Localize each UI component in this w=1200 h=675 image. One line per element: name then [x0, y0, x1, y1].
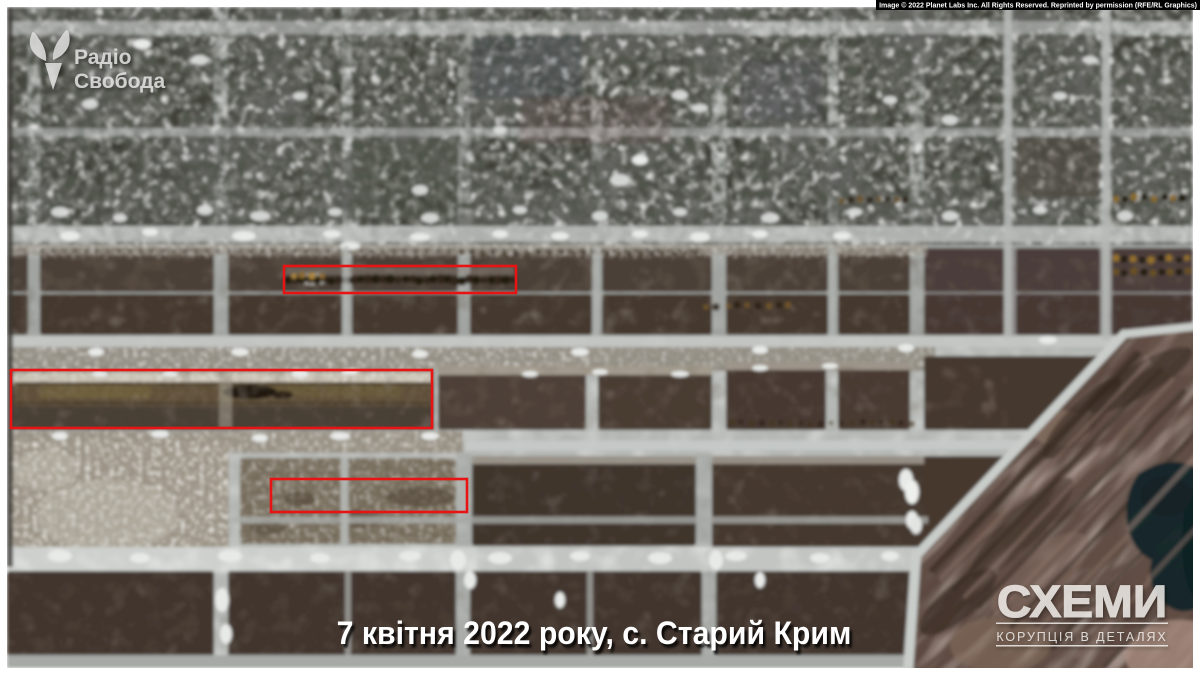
svg-text:СХЕМИ: СХЕМИ: [997, 576, 1167, 626]
svg-text:КОРУПЦІЯ В ДЕТАЛЯХ: КОРУПЦІЯ В ДЕТАЛЯХ: [996, 630, 1167, 644]
svg-text:Image © 2022 Planet Labs Inc.: Image © 2022 Planet Labs Inc. All Rights…: [879, 2, 1197, 10]
svg-text:Радіо: Радіо: [74, 46, 131, 69]
svg-text:7 квітня 2022 року, с. Старий: 7 квітня 2022 року, с. Старий Крим: [337, 615, 852, 651]
svg-text:Свобода: Свобода: [74, 70, 165, 93]
